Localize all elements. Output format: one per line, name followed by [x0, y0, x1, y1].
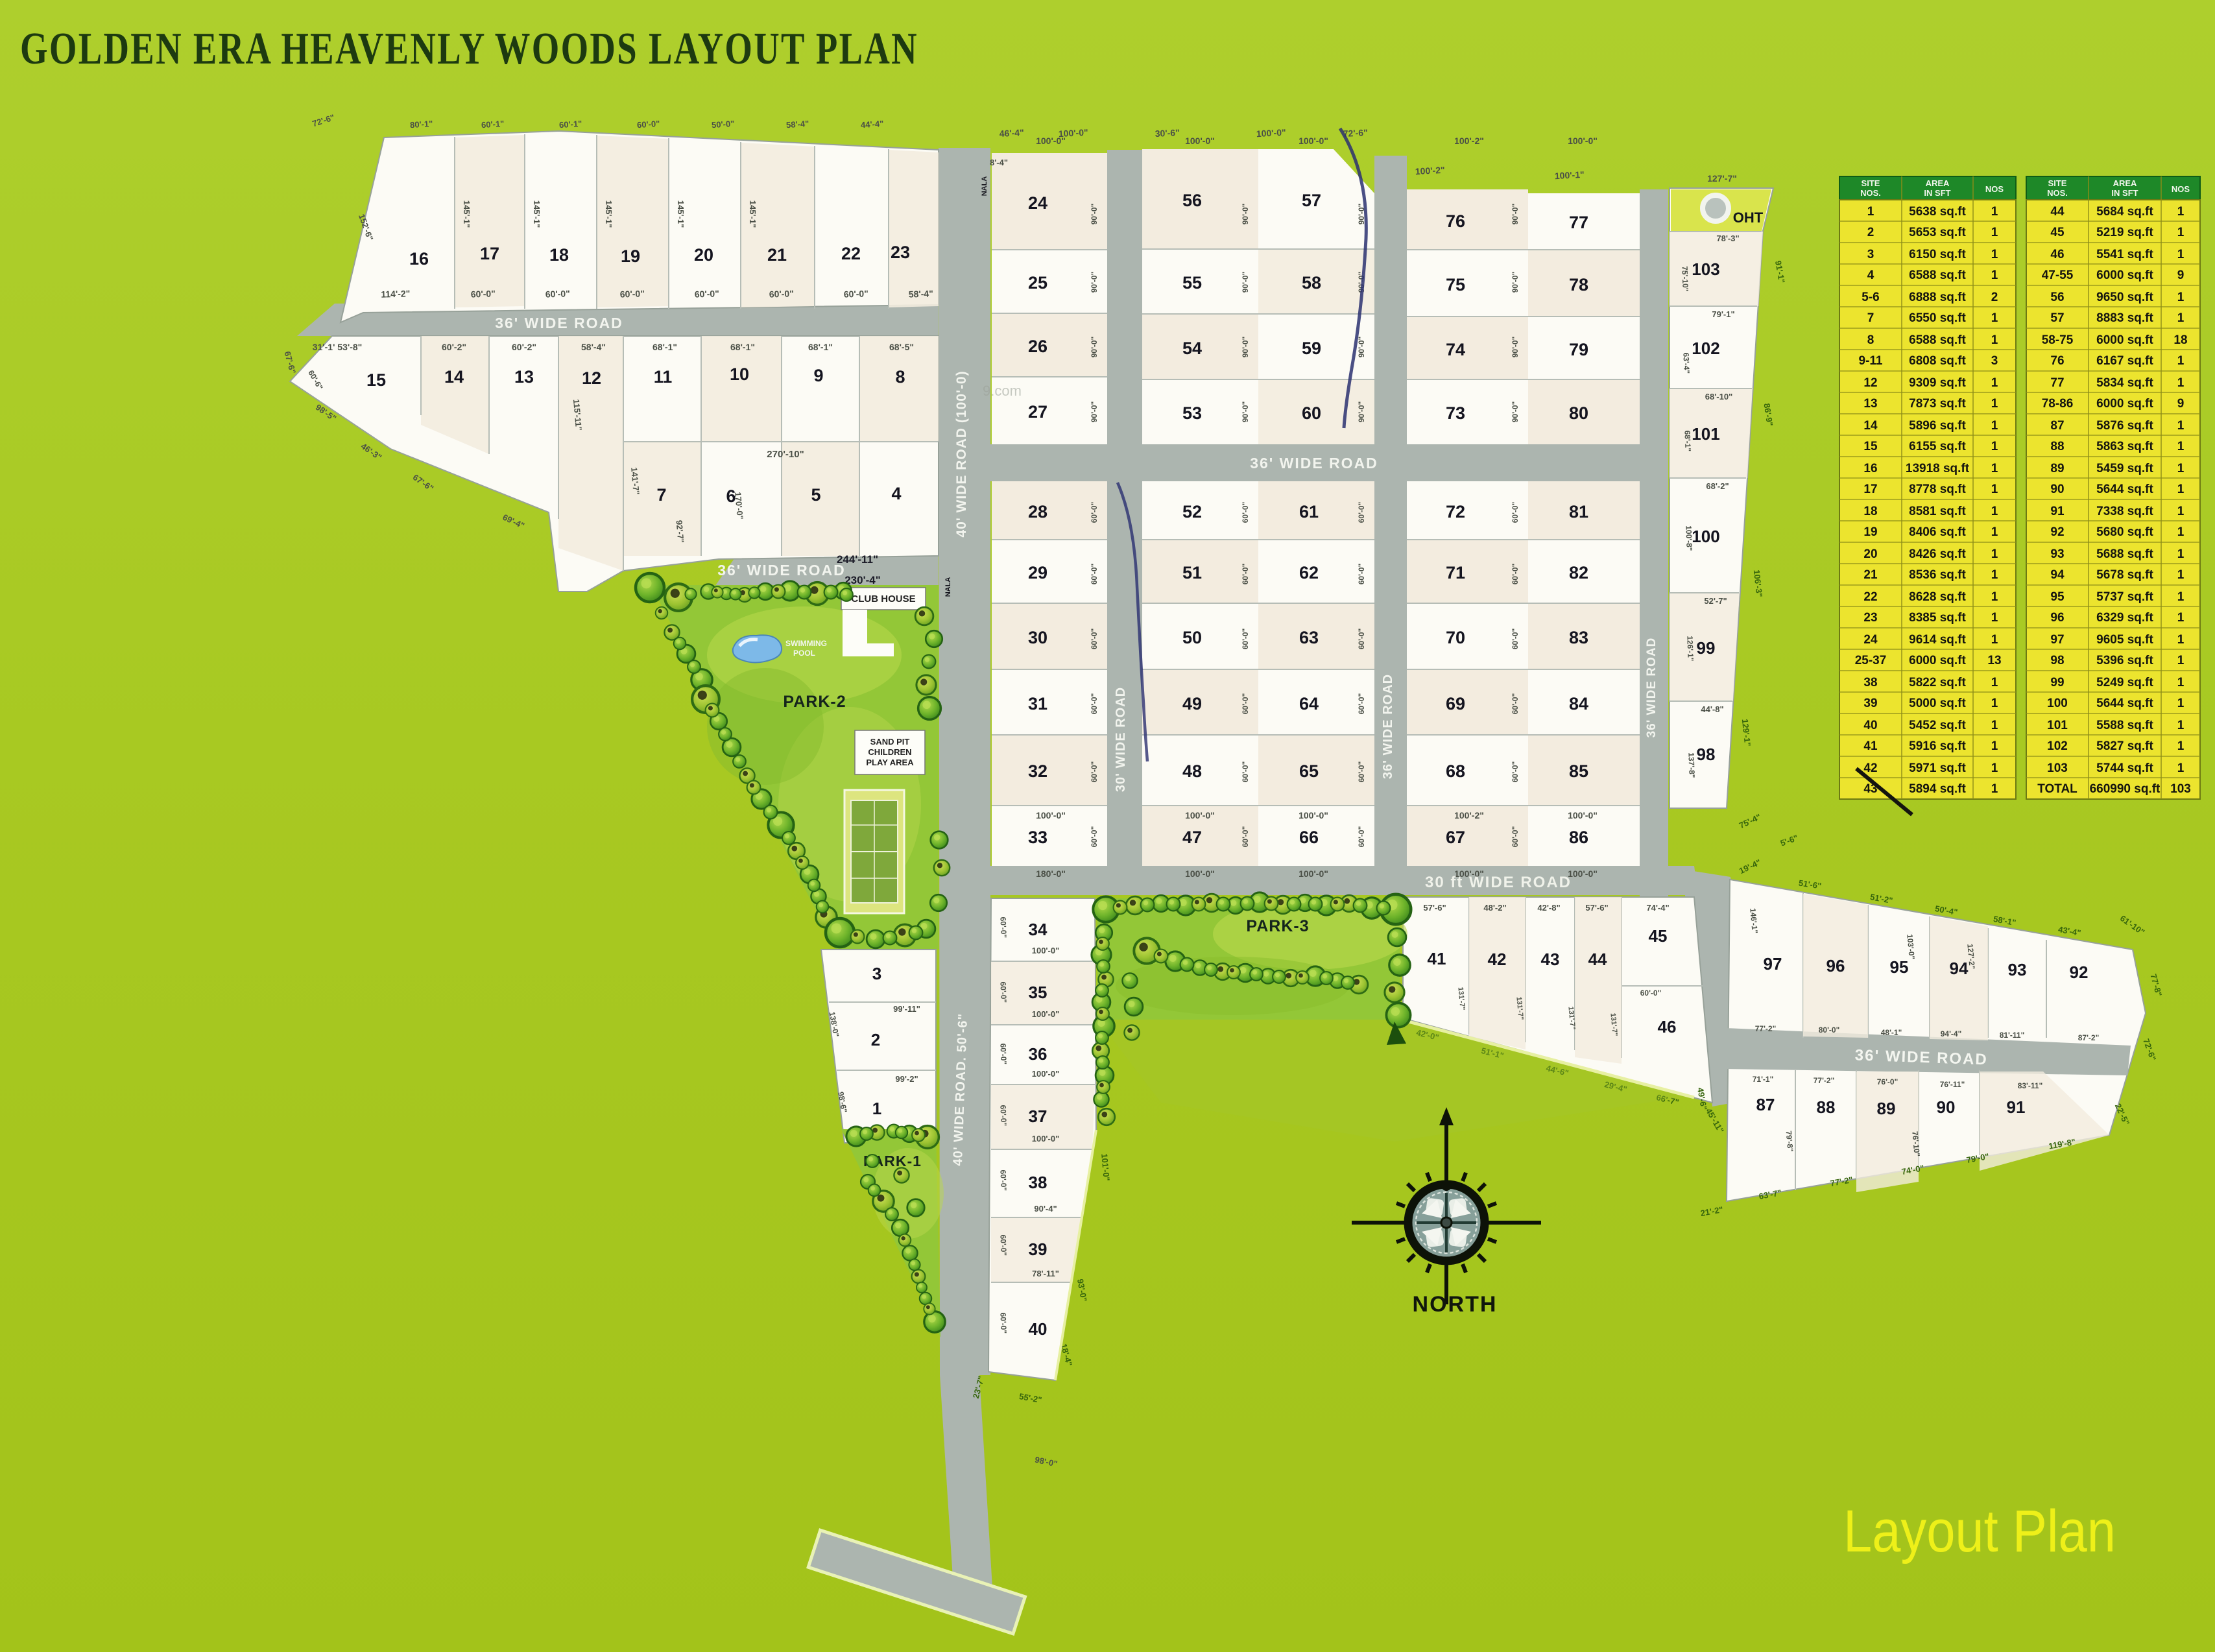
svg-text:5822 sq.ft: 5822 sq.ft [1909, 676, 1966, 689]
svg-text:98: 98 [1697, 745, 1716, 764]
svg-text:1: 1 [2177, 311, 2185, 325]
svg-text:NOS.: NOS. [2047, 188, 2068, 198]
svg-text:270'-10": 270'-10" [767, 449, 804, 460]
svg-text:26: 26 [1028, 337, 1048, 356]
svg-text:73: 73 [1446, 403, 1465, 423]
svg-text:60'-0": 60'-0" [1090, 502, 1099, 523]
svg-text:60'-0": 60'-0" [1241, 761, 1250, 783]
svg-text:85: 85 [1569, 761, 1588, 781]
svg-text:90'-0": 90'-0" [1357, 337, 1366, 358]
svg-text:1: 1 [2177, 654, 2185, 667]
svg-text:54: 54 [1182, 339, 1202, 358]
svg-text:19: 19 [1863, 525, 1877, 539]
svg-text:126'-1": 126'-1" [1685, 636, 1695, 662]
svg-text:60'-0": 60'-0" [1511, 761, 1520, 783]
svg-text:2: 2 [1867, 226, 1874, 239]
svg-text:42: 42 [1863, 761, 1877, 775]
svg-text:46: 46 [2050, 248, 2064, 261]
svg-text:92: 92 [2050, 525, 2064, 539]
svg-text:6888 sq.ft: 6888 sq.ft [1909, 291, 1966, 304]
svg-text:49: 49 [1182, 694, 1202, 713]
svg-text:38: 38 [1863, 676, 1877, 689]
svg-text:46: 46 [1658, 1017, 1677, 1036]
svg-text:1: 1 [2177, 226, 2185, 239]
svg-text:68'-1": 68'-1" [653, 342, 677, 352]
svg-text:90: 90 [1937, 1097, 1956, 1117]
svg-text:1: 1 [1991, 568, 1998, 582]
svg-text:1: 1 [1991, 739, 1998, 753]
svg-text:NOS: NOS [2172, 184, 2190, 194]
svg-text:35: 35 [1029, 983, 1048, 1002]
svg-text:90'-0": 90'-0" [1511, 204, 1520, 225]
svg-text:6000 sq.ft: 6000 sq.ft [1909, 654, 1966, 667]
svg-text:60'-0": 60'-0" [1511, 564, 1520, 585]
svg-text:99: 99 [1697, 638, 1716, 658]
svg-text:83'-11": 83'-11" [2018, 1081, 2043, 1090]
svg-text:102: 102 [2047, 739, 2068, 753]
svg-text:18: 18 [2173, 333, 2187, 347]
svg-text:21: 21 [1863, 568, 1878, 582]
svg-text:79'-8": 79'-8" [1784, 1131, 1795, 1153]
svg-text:60'-1": 60'-1" [559, 119, 582, 130]
svg-text:60'-0": 60'-0" [998, 1234, 1008, 1256]
svg-text:5588 sq.ft: 5588 sq.ft [2096, 719, 2153, 732]
svg-text:90'-0": 90'-0" [1241, 204, 1250, 225]
svg-text:6000 sq.ft: 6000 sq.ft [2096, 397, 2153, 411]
svg-text:6155 sq.ft: 6155 sq.ft [1909, 440, 1966, 453]
svg-text:100'-0": 100'-0" [1185, 810, 1215, 820]
svg-text:60'-0": 60'-0" [1090, 693, 1099, 715]
svg-text:61: 61 [1299, 502, 1319, 521]
svg-text:4: 4 [891, 484, 901, 503]
svg-text:60'-0": 60'-0" [998, 916, 1008, 938]
svg-text:38: 38 [1029, 1173, 1048, 1192]
svg-text:1: 1 [1991, 525, 1998, 539]
svg-text:24: 24 [1863, 633, 1878, 647]
svg-text:1: 1 [2177, 525, 2185, 539]
svg-text:100'-0": 100'-0" [1032, 1009, 1060, 1019]
svg-text:6588 sq.ft: 6588 sq.ft [1909, 333, 1966, 347]
svg-text:TOTAL: TOTAL [2037, 782, 2077, 796]
svg-text:30: 30 [1028, 628, 1048, 647]
svg-text:80: 80 [1569, 403, 1588, 423]
svg-text:71'-1": 71'-1" [1753, 1075, 1774, 1084]
svg-text:1: 1 [872, 1099, 881, 1118]
svg-text:28: 28 [1028, 502, 1048, 521]
svg-text:71: 71 [1446, 563, 1465, 582]
svg-text:23: 23 [891, 243, 910, 262]
svg-text:1: 1 [1991, 611, 1998, 625]
svg-text:47: 47 [1182, 828, 1202, 847]
svg-text:145'-1": 145'-1" [532, 200, 542, 228]
svg-text:8581 sq.ft: 8581 sq.ft [1909, 505, 1966, 518]
svg-text:60'-0": 60'-0" [1241, 502, 1250, 523]
svg-text:80'-0": 80'-0" [1819, 1025, 1840, 1035]
svg-text:45: 45 [2050, 226, 2065, 239]
svg-text:76'-0": 76'-0" [1877, 1077, 1898, 1086]
svg-text:79: 79 [1569, 340, 1588, 359]
svg-text:25-37: 25-37 [1855, 654, 1887, 667]
svg-text:55: 55 [1182, 273, 1202, 293]
svg-text:100'-0": 100'-0" [1032, 1069, 1060, 1079]
svg-text:18: 18 [549, 245, 569, 265]
svg-text:40: 40 [1863, 719, 1877, 732]
svg-text:83: 83 [1569, 628, 1588, 647]
svg-text:SWIMMING: SWIMMING [785, 639, 827, 648]
svg-text:NALA: NALA [944, 577, 952, 597]
svg-text:36' WIDE ROAD: 36' WIDE ROAD [717, 562, 846, 579]
svg-text:59: 59 [1302, 339, 1321, 358]
svg-text:39: 39 [1029, 1239, 1048, 1259]
svg-text:52: 52 [1182, 502, 1202, 521]
svg-text:PARK-3: PARK-3 [1246, 917, 1309, 935]
svg-text:9: 9 [813, 366, 823, 385]
svg-text:5863 sq.ft: 5863 sq.ft [2096, 440, 2153, 453]
svg-text:5541 sq.ft: 5541 sq.ft [2096, 248, 2153, 261]
svg-text:5653 sq.ft: 5653 sq.ft [1909, 226, 1966, 239]
svg-text:60'-0": 60'-0" [998, 1312, 1008, 1334]
svg-text:93: 93 [2050, 547, 2064, 561]
svg-text:60'-0": 60'-0" [1511, 693, 1520, 715]
svg-text:60'-0": 60'-0" [998, 1105, 1008, 1126]
svg-text:57: 57 [1302, 191, 1321, 210]
svg-text:75'-10": 75'-10" [1680, 266, 1690, 292]
svg-text:81: 81 [1569, 502, 1588, 521]
svg-text:78'-11": 78'-11" [1032, 1269, 1059, 1278]
svg-text:99'-2": 99'-2" [895, 1074, 918, 1084]
svg-text:60'-0": 60'-0" [1090, 826, 1099, 848]
svg-text:660990 sq.ft: 660990 sq.ft [2090, 782, 2161, 796]
svg-text:97: 97 [1764, 954, 1782, 974]
svg-text:77'-2": 77'-2" [1755, 1024, 1777, 1033]
svg-text:48'-1": 48'-1" [1881, 1028, 1902, 1037]
svg-text:NOS: NOS [1985, 184, 2004, 194]
svg-text:100'-0": 100'-0" [1058, 127, 1088, 139]
svg-text:60'-0": 60'-0" [1511, 826, 1520, 848]
svg-text:13: 13 [514, 367, 534, 387]
svg-text:90'-0": 90'-0" [1357, 401, 1366, 423]
svg-text:1: 1 [1991, 333, 1998, 347]
svg-text:1: 1 [2177, 611, 2185, 625]
svg-text:AREA: AREA [1926, 178, 1950, 188]
svg-text:60: 60 [1302, 403, 1321, 423]
svg-text:1: 1 [2177, 205, 2185, 219]
svg-text:9-11: 9-11 [1859, 354, 1883, 368]
svg-text:8406 sq.ft: 8406 sq.ft [1909, 525, 1966, 539]
svg-text:1: 1 [2177, 633, 2185, 647]
svg-text:56: 56 [2050, 291, 2064, 304]
svg-text:5396 sq.ft: 5396 sq.ft [2096, 654, 2153, 667]
svg-text:102: 102 [1692, 339, 1719, 358]
svg-text:60'-0": 60'-0" [471, 288, 496, 299]
svg-text:41: 41 [1428, 949, 1446, 968]
svg-text:5876 sq.ft: 5876 sq.ft [2096, 419, 2153, 433]
svg-text:68'-1": 68'-1" [730, 342, 755, 352]
svg-text:30' WIDE ROAD: 30' WIDE ROAD [1114, 687, 1128, 792]
svg-text:94: 94 [1950, 959, 1969, 978]
svg-text:44: 44 [1588, 950, 1607, 969]
svg-text:94: 94 [2050, 568, 2065, 582]
svg-text:IN SFT: IN SFT [1924, 188, 1950, 198]
svg-text:90'-0": 90'-0" [1241, 401, 1250, 423]
svg-text:5678 sq.ft: 5678 sq.ft [2096, 568, 2153, 582]
svg-text:60'-0": 60'-0" [1241, 693, 1250, 715]
svg-text:8'-4": 8'-4" [990, 158, 1008, 167]
svg-text:1: 1 [2177, 719, 2185, 732]
svg-text:1: 1 [2177, 419, 2185, 433]
svg-text:27: 27 [1028, 402, 1048, 422]
svg-text:68'-10": 68'-10" [1705, 392, 1733, 401]
svg-text:PLAY AREA: PLAY AREA [866, 758, 914, 767]
svg-text:8: 8 [1867, 333, 1874, 347]
svg-text:NALA: NALA [981, 176, 988, 197]
svg-text:36' WIDE ROAD: 36' WIDE ROAD [1645, 638, 1658, 738]
svg-text:41: 41 [1863, 739, 1878, 753]
svg-text:94'-4": 94'-4" [1941, 1029, 1962, 1038]
svg-text:60'-0": 60'-0" [998, 1169, 1008, 1191]
svg-text:13918 sq.ft: 13918 sq.ft [1906, 462, 1970, 475]
svg-text:22: 22 [1863, 590, 1877, 604]
svg-text:145'-1": 145'-1" [604, 200, 614, 228]
svg-text:3: 3 [1991, 354, 1998, 368]
svg-text:98: 98 [2050, 654, 2064, 667]
svg-text:60'-0": 60'-0" [1357, 564, 1366, 585]
svg-text:60'-0": 60'-0" [620, 288, 645, 299]
svg-text:43: 43 [1541, 950, 1560, 969]
svg-text:100'-0": 100'-0" [1036, 810, 1066, 820]
svg-text:24: 24 [1028, 193, 1048, 213]
svg-text:1: 1 [2177, 590, 2185, 604]
svg-text:60'-0": 60'-0" [1357, 502, 1366, 523]
svg-text:68'-5": 68'-5" [889, 342, 914, 352]
svg-text:52'-7": 52'-7" [1704, 596, 1727, 606]
svg-text:75: 75 [1446, 275, 1465, 294]
svg-text:5688 sq.ft: 5688 sq.ft [2096, 547, 2153, 561]
svg-text:100'-0": 100'-0" [1256, 127, 1286, 139]
svg-text:81'-11": 81'-11" [2000, 1031, 2025, 1040]
svg-text:1: 1 [2177, 547, 2185, 561]
svg-text:63'-4": 63'-4" [1681, 352, 1691, 374]
svg-text:5: 5 [811, 485, 820, 505]
svg-text:51: 51 [1182, 563, 1202, 582]
svg-text:87: 87 [1756, 1095, 1775, 1114]
svg-text:1: 1 [1991, 547, 1998, 561]
svg-text:1: 1 [2177, 568, 2185, 582]
svg-text:180'-0": 180'-0" [1036, 868, 1066, 879]
svg-text:46'-4": 46'-4" [999, 127, 1024, 139]
svg-text:1: 1 [2177, 462, 2185, 475]
svg-text:100'-0": 100'-0" [1185, 868, 1215, 879]
svg-text:103: 103 [2170, 782, 2191, 796]
svg-text:16: 16 [409, 249, 429, 269]
svg-text:90: 90 [2050, 483, 2064, 496]
svg-text:5894 sq.ft: 5894 sq.ft [1909, 782, 1966, 796]
svg-text:1: 1 [2177, 761, 2185, 775]
svg-text:9: 9 [2177, 269, 2185, 282]
svg-text:15: 15 [366, 370, 386, 390]
svg-text:77'-2": 77'-2" [1814, 1076, 1835, 1085]
svg-text:1: 1 [2177, 483, 2185, 496]
svg-text:44: 44 [2050, 205, 2065, 219]
svg-text:60'-0": 60'-0" [1241, 628, 1250, 650]
svg-text:60'-0": 60'-0" [769, 288, 795, 299]
svg-text:7: 7 [656, 485, 666, 505]
svg-text:Layout Plan: Layout Plan [1843, 1498, 2116, 1564]
svg-text:21: 21 [767, 245, 787, 265]
svg-text:68'-1": 68'-1" [1682, 430, 1692, 451]
svg-text:62: 62 [1299, 563, 1319, 582]
svg-text:76: 76 [1446, 211, 1465, 231]
svg-text:50: 50 [1182, 628, 1202, 647]
svg-text:87: 87 [2050, 419, 2064, 433]
svg-text:18: 18 [1863, 505, 1877, 518]
svg-text:1: 1 [1991, 761, 1998, 775]
svg-text:6000 sq.ft: 6000 sq.ft [2096, 333, 2153, 347]
svg-text:8: 8 [895, 367, 905, 387]
svg-text:60'-0": 60'-0" [695, 288, 720, 299]
svg-text:68'-2": 68'-2" [1706, 481, 1729, 491]
svg-text:60'-0": 60'-0" [998, 981, 1008, 1003]
svg-text:30 ft WIDE ROAD: 30 ft WIDE ROAD [1425, 874, 1572, 891]
svg-text:20: 20 [1863, 547, 1877, 561]
svg-text:1: 1 [1991, 590, 1998, 604]
svg-text:SITE: SITE [2048, 178, 2067, 188]
svg-text:63: 63 [1299, 628, 1319, 647]
svg-text:60'-0": 60'-0" [1090, 761, 1099, 783]
svg-text:31: 31 [1028, 694, 1048, 713]
svg-text:1: 1 [1991, 205, 1998, 219]
svg-text:3: 3 [1867, 248, 1874, 261]
svg-text:45: 45 [1649, 926, 1668, 946]
svg-text:1: 1 [1991, 483, 1998, 496]
svg-text:77: 77 [1569, 213, 1588, 232]
svg-text:9.com: 9.com [983, 383, 1022, 399]
svg-text:6588 sq.ft: 6588 sq.ft [1909, 269, 1966, 282]
svg-text:96: 96 [2050, 611, 2064, 625]
svg-text:68: 68 [1446, 761, 1465, 781]
svg-text:33: 33 [1028, 828, 1048, 847]
svg-text:100'-2": 100'-2" [1454, 810, 1484, 820]
svg-text:22: 22 [841, 244, 861, 263]
svg-text:99: 99 [2050, 676, 2064, 689]
svg-text:145'-1": 145'-1" [748, 200, 758, 228]
svg-text:100: 100 [1692, 527, 1719, 546]
svg-text:100: 100 [2047, 697, 2068, 710]
svg-text:5896 sq.ft: 5896 sq.ft [1909, 419, 1966, 433]
svg-text:11: 11 [654, 367, 673, 387]
svg-text:14: 14 [444, 367, 464, 387]
svg-text:91: 91 [2007, 1097, 2026, 1117]
svg-text:90'-0": 90'-0" [1090, 401, 1099, 423]
svg-text:8628 sq.ft: 8628 sq.ft [1909, 590, 1966, 604]
svg-text:31'-1' 53'-8": 31'-1' 53'-8" [313, 342, 363, 352]
svg-text:57'-6": 57'-6" [1585, 903, 1608, 913]
svg-text:1: 1 [2177, 440, 2185, 453]
svg-text:6550 sq.ft: 6550 sq.ft [1909, 311, 1966, 325]
svg-text:1: 1 [2177, 248, 2185, 261]
svg-text:101: 101 [2047, 719, 2068, 732]
svg-text:100'-8": 100'-8" [1684, 525, 1694, 551]
svg-text:20: 20 [694, 245, 713, 265]
svg-text:1: 1 [2177, 291, 2185, 304]
svg-text:44'-4": 44'-4" [861, 119, 884, 130]
svg-text:8426 sq.ft: 8426 sq.ft [1909, 547, 1966, 561]
svg-text:100'-0": 100'-0" [1185, 136, 1215, 146]
svg-text:90'-0": 90'-0" [1511, 337, 1520, 358]
svg-text:58'-4": 58'-4" [581, 342, 606, 352]
svg-text:7: 7 [1867, 311, 1874, 325]
svg-text:103: 103 [1692, 259, 1719, 279]
svg-text:89: 89 [1877, 1099, 1896, 1118]
svg-text:5644 sq.ft: 5644 sq.ft [2096, 697, 2153, 710]
svg-text:NORTH: NORTH [1413, 1292, 1498, 1317]
svg-text:19: 19 [621, 246, 640, 266]
svg-text:48'-2": 48'-2" [1483, 903, 1506, 913]
svg-text:2: 2 [871, 1030, 880, 1049]
svg-text:100'-0": 100'-0" [1032, 1134, 1060, 1143]
svg-text:42'-8": 42'-8" [1537, 903, 1560, 913]
svg-text:5-6: 5-6 [1862, 291, 1879, 304]
svg-text:1: 1 [1991, 397, 1998, 411]
svg-text:60'-0": 60'-0" [844, 288, 869, 299]
svg-text:70: 70 [1446, 628, 1465, 647]
svg-text:90'-0": 90'-0" [1241, 272, 1250, 293]
svg-text:5827 sq.ft: 5827 sq.ft [2096, 739, 2153, 753]
svg-text:100'-0": 100'-0" [1568, 810, 1598, 820]
svg-text:5680 sq.ft: 5680 sq.ft [2096, 525, 2153, 539]
svg-text:137'-8": 137'-8" [1686, 752, 1696, 778]
svg-text:7873 sq.ft: 7873 sq.ft [1909, 397, 1966, 411]
svg-text:17: 17 [480, 244, 499, 263]
svg-text:40: 40 [1029, 1319, 1048, 1339]
svg-text:100'-0": 100'-0" [1568, 868, 1598, 879]
svg-text:36: 36 [1029, 1044, 1048, 1064]
svg-text:60'-2": 60'-2" [442, 342, 466, 352]
svg-text:CLUB HOUSE: CLUB HOUSE [851, 593, 915, 605]
svg-text:82: 82 [1569, 563, 1588, 582]
svg-text:NOS.: NOS. [1860, 188, 1881, 198]
svg-text:6167 sq.ft: 6167 sq.ft [2096, 354, 2153, 368]
svg-text:1: 1 [1991, 633, 1998, 647]
svg-text:5834 sq.ft: 5834 sq.ft [2096, 376, 2153, 390]
svg-text:5644 sq.ft: 5644 sq.ft [2096, 483, 2153, 496]
svg-text:60'-0": 60'-0" [1357, 693, 1366, 715]
svg-text:145'-1": 145'-1" [676, 200, 686, 228]
svg-text:OHT: OHT [1733, 209, 1764, 226]
svg-text:1: 1 [1991, 505, 1998, 518]
svg-text:78-86: 78-86 [2042, 397, 2074, 411]
svg-text:77: 77 [2050, 376, 2064, 390]
svg-text:100'-0": 100'-0" [1299, 136, 1328, 146]
svg-text:60'-0": 60'-0" [545, 288, 571, 299]
svg-text:2: 2 [1991, 291, 1998, 304]
svg-text:67: 67 [1446, 828, 1465, 847]
svg-text:SITE: SITE [1862, 178, 1880, 188]
svg-text:8778 sq.ft: 8778 sq.ft [1909, 483, 1966, 496]
svg-text:60'-0": 60'-0" [1241, 564, 1250, 585]
svg-text:60'-0": 60'-0" [1511, 628, 1520, 650]
svg-text:230'-4": 230'-4" [844, 574, 881, 586]
svg-text:76: 76 [2050, 354, 2064, 368]
svg-text:60'-2": 60'-2" [512, 342, 536, 352]
svg-text:1: 1 [2177, 505, 2185, 518]
svg-text:30'-6": 30'-6" [1155, 127, 1180, 139]
svg-text:44'-8": 44'-8" [1701, 704, 1723, 714]
svg-text:15: 15 [1863, 440, 1878, 453]
svg-text:57'-6": 57'-6" [1423, 903, 1446, 913]
svg-text:5459 sq.ft: 5459 sq.ft [2096, 462, 2153, 475]
svg-text:127'-7": 127'-7" [1707, 173, 1737, 184]
